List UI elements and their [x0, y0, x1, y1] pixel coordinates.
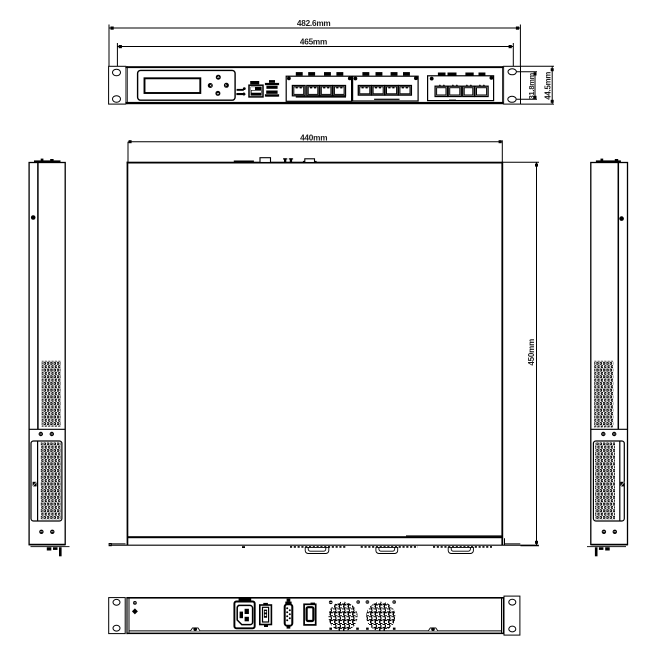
svg-text:450mm: 450mm	[527, 339, 536, 366]
svg-text:482.6mm: 482.6mm	[297, 19, 331, 28]
svg-text:31.8mm: 31.8mm	[527, 72, 536, 99]
svg-text:44.5mm: 44.5mm	[543, 72, 552, 100]
svg-text:465mm: 465mm	[300, 37, 327, 46]
svg-text:440mm: 440mm	[300, 134, 327, 143]
